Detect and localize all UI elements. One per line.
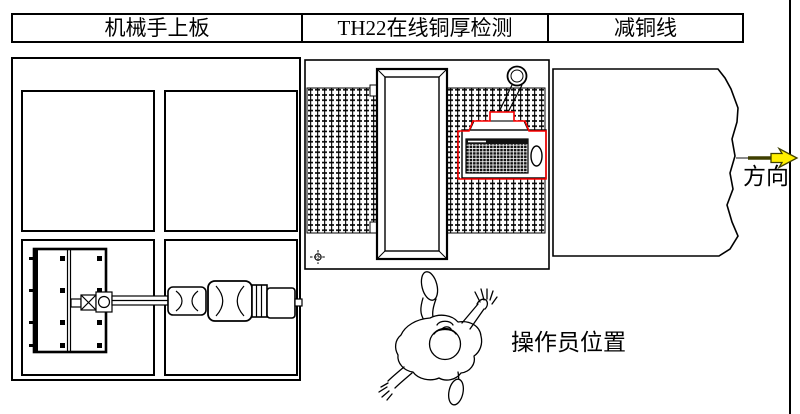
operator-hand-lower — [379, 383, 392, 400]
operator-position-label: 操作员位置 — [511, 330, 626, 356]
robot-body — [168, 281, 302, 321]
operator-figure — [375, 263, 510, 414]
board-slot-top-left — [21, 90, 155, 232]
header-label-robot-loading: 机械手上板 — [105, 16, 210, 40]
th22-machine-drawing — [304, 59, 550, 270]
header-label-th22-detection: TH22在线铜厚检测 — [338, 16, 513, 40]
direction-label: 方向 — [743, 164, 789, 190]
header-label-copper-reduction: 减铜线 — [614, 16, 677, 40]
right-border-line — [789, 0, 791, 414]
robot-gripper-boom — [71, 292, 168, 312]
header-section-robot-loading: 机械手上板 — [11, 13, 303, 43]
copper-reduction-area-drawing — [550, 64, 750, 260]
board-slot-top-right — [164, 90, 298, 232]
header-section-th22-detection: TH22在线铜厚检测 — [301, 13, 549, 43]
operator-foot-bottom — [446, 378, 465, 406]
header-section-copper-reduction: 减铜线 — [547, 13, 744, 43]
console-mouse — [531, 146, 542, 166]
robot-arm-drawing — [11, 230, 311, 390]
console-keyboard — [466, 139, 528, 173]
gantry-frame — [370, 69, 447, 259]
factory-layout-diagram: 机械手上板 TH22在线铜厚检测 减铜线 — [0, 0, 800, 414]
copper-reduction-line-area — [553, 69, 738, 256]
operator-foot-top — [419, 270, 441, 302]
